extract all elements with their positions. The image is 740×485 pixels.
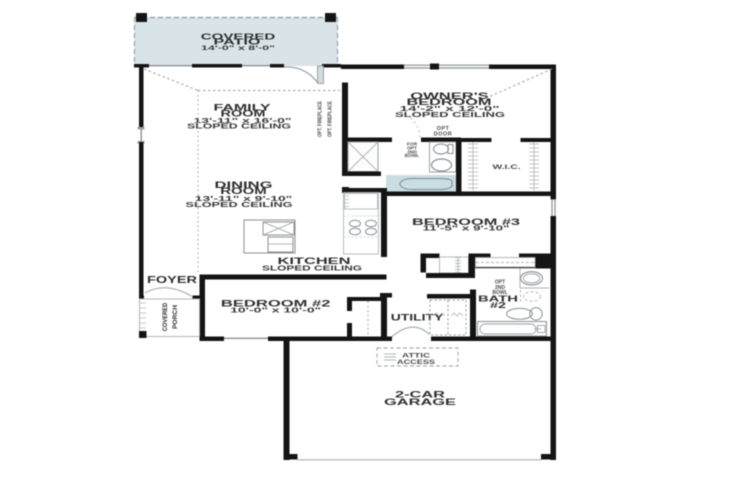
svg-text:#2: #2 xyxy=(490,300,506,310)
svg-text:GARAGE: GARAGE xyxy=(384,397,456,407)
svg-text:OPT. FIREPLACE: OPT. FIREPLACE xyxy=(328,101,334,137)
svg-text:14'-0" x 8'-0": 14'-0" x 8'-0" xyxy=(201,45,275,52)
svg-text:SLOPED CEILING: SLOPED CEILING xyxy=(395,112,506,119)
svg-text:10'-0" x 10'-0": 10'-0" x 10'-0" xyxy=(230,308,321,315)
svg-text:PORCH: PORCH xyxy=(172,304,179,329)
svg-text:ACCESS: ACCESS xyxy=(397,359,435,366)
svg-text:COVERED: COVERED xyxy=(162,302,169,331)
svg-text:SLOPED CEILING: SLOPED CEILING xyxy=(186,202,294,209)
svg-text:DOOR: DOOR xyxy=(434,132,453,138)
svg-text:W.I.C.: W.I.C. xyxy=(493,164,521,171)
svg-text:BOWL: BOWL xyxy=(492,290,507,296)
svg-text:11'-5" x 9'-10": 11'-5" x 9'-10" xyxy=(423,226,510,233)
svg-text:SLOPED CEILING: SLOPED CEILING xyxy=(262,265,363,272)
svg-text:SLOPED CEILING: SLOPED CEILING xyxy=(187,123,292,130)
svg-text:FOYER: FOYER xyxy=(147,275,197,286)
svg-text:OPT. FIREPLACE: OPT. FIREPLACE xyxy=(318,101,324,137)
svg-text:UTILITY: UTILITY xyxy=(391,313,444,324)
svg-text:BOWL: BOWL xyxy=(405,153,420,159)
